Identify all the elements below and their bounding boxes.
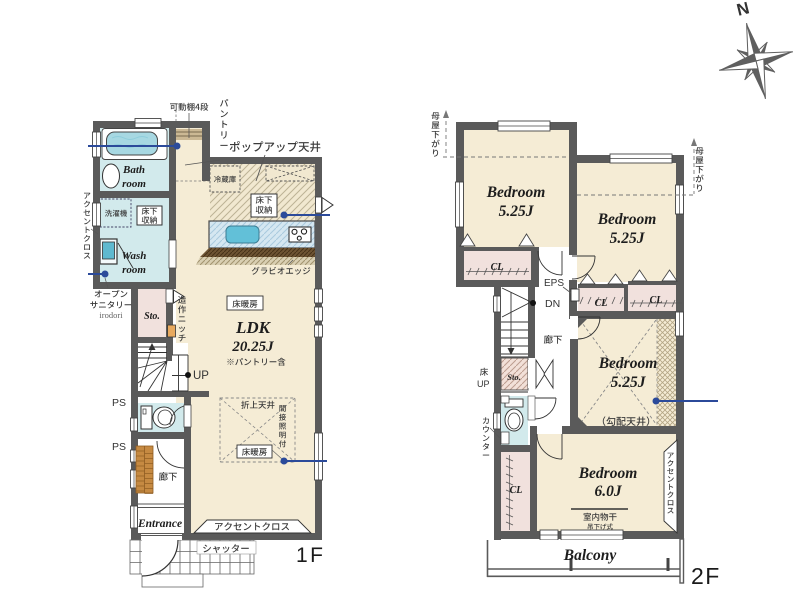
svg-text:1F: 1F xyxy=(296,544,326,567)
svg-text:EPS: EPS xyxy=(544,278,564,289)
svg-text:CL: CL xyxy=(491,262,504,273)
svg-text:Bedroom: Bedroom xyxy=(486,184,546,201)
svg-text:Entrance: Entrance xyxy=(137,518,182,530)
svg-text:room: room xyxy=(122,264,146,276)
svg-text:5.25J: 5.25J xyxy=(499,203,535,220)
svg-text:6.0J: 6.0J xyxy=(594,483,622,500)
svg-text:irodori: irodori xyxy=(99,310,123,320)
svg-text:Wash: Wash xyxy=(122,250,147,262)
svg-text:Bath: Bath xyxy=(122,164,145,176)
svg-text:Bedroom: Bedroom xyxy=(578,465,638,482)
svg-text:Bedroom: Bedroom xyxy=(598,355,658,372)
svg-text:N: N xyxy=(735,0,752,20)
svg-text:CL: CL xyxy=(650,295,663,306)
svg-text:PS: PS xyxy=(112,441,126,453)
svg-text:Bedroom: Bedroom xyxy=(597,211,657,228)
svg-text:DN: DN xyxy=(545,298,560,310)
svg-text:PS: PS xyxy=(112,397,126,409)
svg-text:CL: CL xyxy=(595,298,608,309)
svg-text:UP: UP xyxy=(193,370,209,382)
svg-text:5.25J: 5.25J xyxy=(610,230,646,247)
svg-text:Sto.: Sto. xyxy=(144,311,160,322)
svg-text:2F: 2F xyxy=(691,563,721,589)
svg-text:room: room xyxy=(122,178,146,190)
svg-text:5.25J: 5.25J xyxy=(611,374,647,391)
svg-text:Balcony: Balcony xyxy=(563,547,617,564)
svg-text:20.25J: 20.25J xyxy=(231,339,274,355)
svg-text:LDK: LDK xyxy=(235,318,272,337)
svg-text:UP: UP xyxy=(477,379,490,389)
svg-text:CL: CL xyxy=(510,485,523,496)
svg-text:Sto.: Sto. xyxy=(507,372,520,382)
